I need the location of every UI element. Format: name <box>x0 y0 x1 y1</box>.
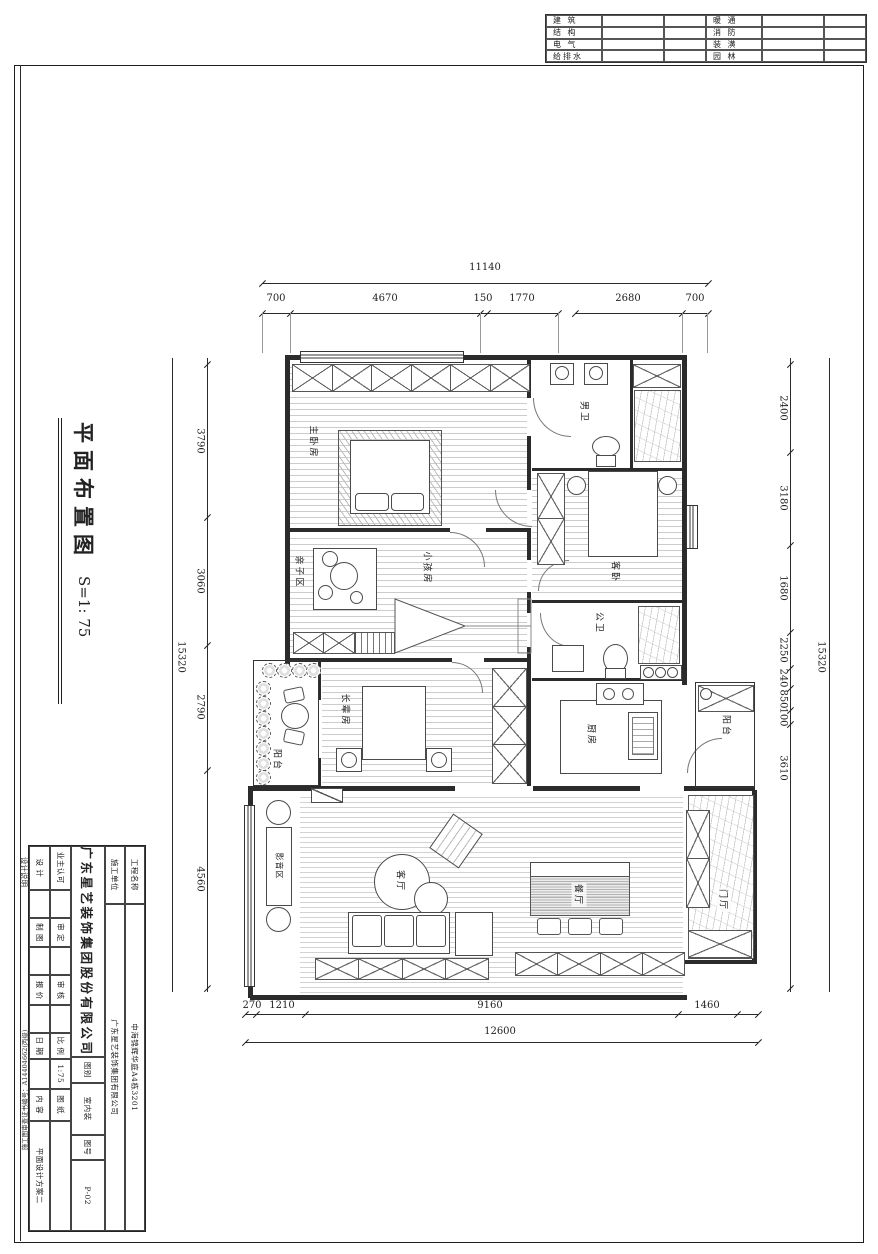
balcony-table <box>281 703 309 729</box>
wall <box>290 528 527 532</box>
wardrobe <box>492 668 527 708</box>
step-shelf <box>355 632 395 654</box>
dim-right-seg: 1680 <box>778 575 789 600</box>
tb-company: 广东星艺装饰集团股份有限公司 <box>71 846 105 1057</box>
cell-label: 暖 通 <box>706 15 762 27</box>
dim-top-seg: 1770 <box>509 293 534 304</box>
tb-drawing-label: 图 纸 <box>50 1089 71 1121</box>
side-table <box>455 912 493 956</box>
cell-empty <box>762 27 824 39</box>
cell-empty <box>824 39 866 51</box>
dim-left-total: 15320 <box>176 641 187 673</box>
drain <box>700 688 712 700</box>
vanity-bowl <box>655 667 666 678</box>
cell-empty <box>762 15 824 27</box>
dim-bottom-seg: 9160 <box>477 1000 502 1011</box>
tb-scale-value: 1:75 <box>50 1059 71 1089</box>
witness-line <box>558 313 559 353</box>
cell-empty <box>824 27 866 39</box>
plant <box>292 663 307 678</box>
dim-right-seg: 2400 <box>778 395 789 420</box>
tb-content-label: 内 容 <box>29 1089 50 1121</box>
play-tent <box>393 597 533 655</box>
dim-right-seg: 100 <box>778 707 789 726</box>
tb-owner-label: 业主认可 <box>50 846 71 890</box>
cell-label: 建 筑 <box>546 15 602 27</box>
room-label-living: 客厅 <box>395 870 408 892</box>
room-label-foyer: 门厅 <box>717 888 732 912</box>
wall <box>290 658 527 662</box>
tb-draft-label: 制 图 <box>29 918 50 948</box>
plant <box>256 741 271 756</box>
door-opening <box>527 560 531 592</box>
dim-top-total: 11140 <box>469 262 501 273</box>
witness-line <box>707 313 708 353</box>
tb-category-value: 室内装 <box>71 1083 105 1135</box>
cabinet <box>323 632 355 654</box>
cell-label: 消 防 <box>706 27 762 39</box>
wardrobe <box>537 518 565 565</box>
dim-top-seg: 150 <box>473 293 492 304</box>
dim-line <box>245 1042 758 1043</box>
play-table-item <box>330 562 358 590</box>
room-label-balcony-right: 阳台 <box>721 715 734 737</box>
plant <box>306 663 321 678</box>
door-opening <box>450 528 486 532</box>
dim-right-seg: 2250 <box>778 637 789 662</box>
stove-burner <box>603 688 615 700</box>
speaker <box>266 800 291 825</box>
stove-burner <box>622 688 634 700</box>
dining-chair <box>537 918 561 935</box>
speaker <box>266 907 291 932</box>
room-label-media: 影音区 <box>274 853 285 880</box>
dim-left-seg: 3790 <box>195 428 206 453</box>
tb-empty <box>50 890 71 918</box>
tb-project-label: 工程名称 <box>125 846 145 904</box>
plant <box>256 756 271 771</box>
tb-project-value: 中海锦辉华庭A4栋3201 <box>125 904 145 1231</box>
kitchen-sink-grid <box>632 717 654 755</box>
tb-approved-label: 审 定 <box>50 918 71 948</box>
tb-builder-value: 广东星艺装饰集团有限公司 <box>105 904 125 1231</box>
sofa-cushion <box>352 915 382 947</box>
room-label-public-bath: 公卫 <box>594 612 607 634</box>
play-table-item <box>318 585 333 600</box>
wardrobe <box>492 706 527 746</box>
wardrobe <box>292 364 530 392</box>
dim-right-seg: 850 <box>778 689 789 708</box>
tb-empty <box>50 1121 71 1231</box>
review-cert-text: 施工图审查证书编号：A14404662(丙级) <box>19 1030 29 1151</box>
toilet-base <box>605 668 626 679</box>
witness-line <box>262 313 263 353</box>
door-opening <box>640 786 684 791</box>
tb-content-value: 平面设计方案二 <box>29 1121 50 1231</box>
window <box>300 351 464 363</box>
dim-line <box>207 358 208 992</box>
wall <box>285 530 290 665</box>
cell-label: 园 林 <box>706 50 762 62</box>
cell-empty <box>824 15 866 27</box>
vanity-bowl <box>643 667 654 678</box>
wall <box>250 995 687 1000</box>
nightstand-lamp <box>431 752 447 768</box>
room-label-men-bath: 男卫 <box>579 401 592 423</box>
shoe-cabinet <box>688 930 752 958</box>
tb-empty <box>29 947 50 975</box>
pillow <box>355 493 389 511</box>
drawing-sheet: 建 筑 暖 通 结 构 消 防 电 气 装 潢 给排水 园 林 平面布置图 S=… <box>0 0 878 1254</box>
dim-right-total: 15320 <box>816 641 827 673</box>
cell-empty <box>664 15 706 27</box>
cell-empty <box>664 27 706 39</box>
cell-label: 电 气 <box>546 39 602 51</box>
cell-empty <box>824 50 866 62</box>
title-block: 工程名称 中海锦辉华庭A4栋3201 施工单位 广东星艺装饰集团有限公司 广东星… <box>28 845 146 1232</box>
dim-bottom-total: 12600 <box>484 1026 516 1037</box>
cell-label: 给排水 <box>546 50 602 62</box>
dining-chair <box>568 918 592 935</box>
room-label-kids: 小孩房 <box>422 551 435 584</box>
room-label-dining: 餐厅 <box>572 883 587 907</box>
bed-elder <box>362 686 426 760</box>
window <box>244 805 255 987</box>
living-table-small <box>414 882 448 916</box>
door-opening <box>527 398 531 436</box>
washbasin-bowl <box>555 366 569 380</box>
cabinet <box>633 364 681 388</box>
tb-builder-label: 施工单位 <box>105 846 125 904</box>
toilet-base <box>596 455 616 467</box>
plant <box>262 663 277 678</box>
shoe-cabinet <box>686 858 710 908</box>
dim-top-seg: 4670 <box>372 293 397 304</box>
room-label-guest: 客卧 <box>610 561 623 583</box>
sofa-cushion <box>384 915 414 947</box>
dim-line <box>262 313 558 314</box>
dim-bottom-seg: 1210 <box>269 1000 294 1011</box>
drawing-title: 平面布置图 S=1: 75 <box>58 418 106 704</box>
cell-empty <box>602 15 664 27</box>
plant <box>256 696 271 711</box>
dim-left-seg: 4560 <box>195 866 206 891</box>
witness-line <box>290 313 291 353</box>
dim-right-seg: 3180 <box>778 485 789 510</box>
dim-top-seg: 700 <box>685 293 704 304</box>
dim-top-seg: 700 <box>266 293 285 304</box>
nightstand-lamp <box>567 476 586 495</box>
cell-empty <box>762 39 824 51</box>
tb-empty <box>29 1005 50 1033</box>
tb-sheetno-label: 图号 <box>71 1135 105 1161</box>
plant <box>277 663 292 678</box>
play-table-item <box>350 591 363 604</box>
window <box>686 505 698 549</box>
discipline-table: 建 筑 暖 通 结 构 消 防 电 气 装 潢 给排水 园 林 <box>545 14 867 63</box>
vanity-bowl <box>667 667 678 678</box>
tb-quote-label: 报 价 <box>29 975 50 1005</box>
door-opening <box>455 786 533 791</box>
sofa-cushion <box>416 915 446 947</box>
shower <box>634 390 681 462</box>
play-table-item <box>322 551 338 567</box>
witness-line <box>682 313 683 353</box>
drawing-scale-text: S=1: 75 <box>75 576 93 637</box>
dim-right-seg: 3610 <box>778 755 789 780</box>
cell-empty <box>602 50 664 62</box>
tb-sheetno-value: P-02 <box>71 1160 105 1231</box>
cabinet <box>293 632 325 654</box>
tb-scale-label: 比 例 <box>50 1033 71 1059</box>
cell-empty <box>602 27 664 39</box>
shower <box>638 606 680 664</box>
bed-guest <box>588 471 658 557</box>
cell-empty <box>664 50 706 62</box>
tb-empty <box>50 947 71 975</box>
plant <box>256 711 271 726</box>
cell-label: 装 潢 <box>706 39 762 51</box>
cell-empty <box>602 39 664 51</box>
dim-line <box>829 358 830 992</box>
washbasin <box>552 645 584 672</box>
wardrobe <box>537 473 565 520</box>
cell-label: 结 构 <box>546 27 602 39</box>
cabinet-row <box>515 952 685 976</box>
plant <box>256 770 271 785</box>
tb-date-label: 日 期 <box>29 1033 50 1059</box>
room-label-balcony-left: 阳台 <box>272 749 285 771</box>
tb-empty <box>29 1059 50 1089</box>
dim-line <box>575 313 708 314</box>
dim-left-seg: 2790 <box>195 694 206 719</box>
nightstand-lamp <box>341 752 357 768</box>
plant <box>256 681 271 696</box>
door-opening <box>682 738 687 772</box>
dim-bottom-seg: 270 <box>242 1000 261 1011</box>
wardrobe <box>492 744 527 784</box>
cell-empty <box>664 39 706 51</box>
toilet <box>592 436 620 457</box>
washbasin-bowl <box>589 366 603 380</box>
drawing-title-text: 平面布置图 <box>69 422 99 562</box>
dining-chair <box>599 918 623 935</box>
dim-right-seg: 240 <box>778 668 789 687</box>
shoe-cabinet <box>686 810 710 860</box>
bench <box>311 788 343 803</box>
cell-empty <box>762 50 824 62</box>
tv-cabinet <box>315 958 489 980</box>
room-label-elder: 长辈房 <box>340 693 353 726</box>
tb-empty <box>29 890 50 918</box>
pillow <box>391 493 424 511</box>
nightstand-lamp <box>658 476 677 495</box>
dim-left-seg: 3060 <box>195 568 206 593</box>
tb-empty <box>50 1005 71 1033</box>
wall <box>683 960 757 964</box>
design-note-label: 设计说明 <box>19 857 30 887</box>
dim-bottom-seg: 1460 <box>694 1000 719 1011</box>
room-label-family: 亲子区 <box>294 555 307 588</box>
dim-top-seg: 2680 <box>615 293 640 304</box>
witness-line <box>480 313 481 353</box>
dim-line <box>172 358 173 992</box>
plant <box>256 726 271 741</box>
room-label-kitchen: 厨房 <box>586 724 599 746</box>
room-label-master: 主卧房 <box>308 425 321 458</box>
dim-line <box>262 283 708 284</box>
wall <box>532 600 684 603</box>
tb-category-label: 图别 <box>71 1057 105 1083</box>
tb-design-label: 设 计 <box>29 846 50 890</box>
tb-checked-label: 审 核 <box>50 975 71 1005</box>
dim-line <box>245 1014 758 1015</box>
wall <box>285 355 290 535</box>
